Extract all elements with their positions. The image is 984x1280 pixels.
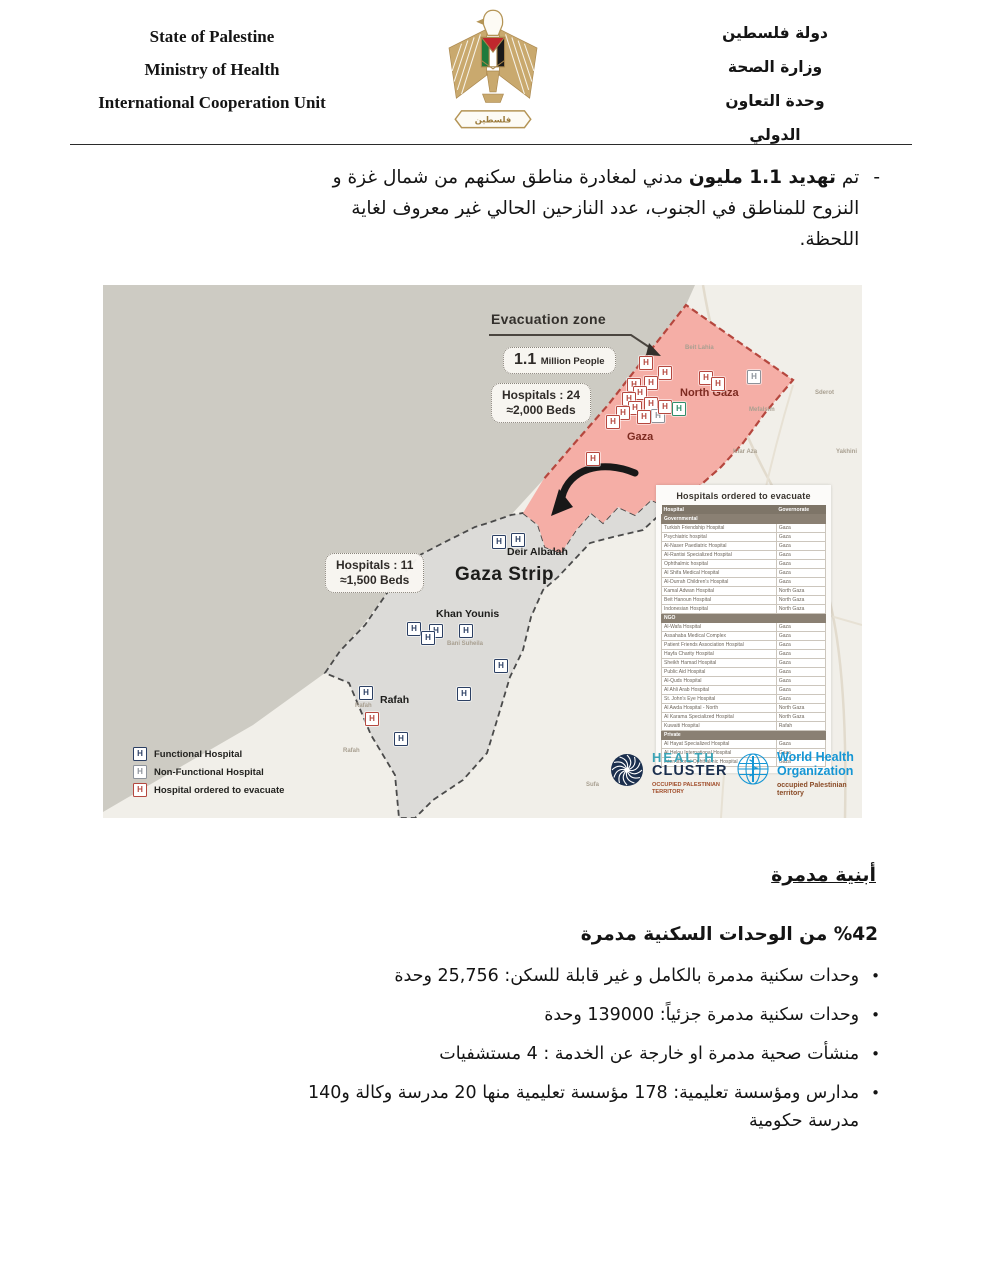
- who-line2: Organization: [777, 765, 854, 779]
- bg-place-label: Sufa: [586, 782, 599, 788]
- palestine-coat-of-arms: فلسطين: [438, 6, 548, 136]
- bullet-dot: •: [871, 1079, 880, 1135]
- bg-place-label: Kfar Aza: [733, 449, 757, 455]
- hospitals-table-body: GovernmentalTurkish Friendship HospitalG…: [662, 515, 826, 767]
- table-row: Hayfa Charity HospitalGaza: [662, 650, 826, 659]
- destroyed-bullets-list: •وحدات سكنية مدمرة بالكامل و غير قابلة ل…: [280, 962, 880, 1146]
- population-callout: 1.1 Million People: [503, 347, 616, 374]
- table-row: Al Shifa Medical HospitalGaza: [662, 569, 826, 578]
- hospital-evacuate-icon: H: [365, 712, 379, 726]
- table-section-row: NGO: [662, 614, 826, 623]
- table-row: Indonesian HospitalNorth Gaza: [662, 605, 826, 614]
- hospital-functional-icon: H: [359, 686, 373, 700]
- table-row: Ophthalmic hospitalGaza: [662, 560, 826, 569]
- header-arabic: دولة فلسطين وزارة الصحة وحدة التعاون الد…: [700, 16, 850, 152]
- hospital-green-icon: H: [672, 402, 686, 416]
- table-row: Sheikh Hamad HospitalGaza: [662, 659, 826, 668]
- table-row: Al Awda Hospital - NorthNorth Gaza: [662, 704, 826, 713]
- population-value: 1.1: [514, 351, 536, 368]
- hospital-functional-icon: H: [457, 687, 471, 701]
- table-row: St. John's Eye HospitalGaza: [662, 695, 826, 704]
- header-ar-line3: وحدة التعاون الدولي: [700, 84, 850, 152]
- bg-place-label: Mefalsim: [749, 407, 775, 413]
- bullet-dot: •: [871, 962, 880, 990]
- table-section-row: Private: [662, 731, 826, 740]
- header-divider: [70, 144, 912, 145]
- bullet-item: •منشأت صحية مدمرة او خارجة عن الخدمة : 4…: [280, 1040, 880, 1068]
- table-col-governorate: Governorate: [776, 505, 825, 515]
- table-row: Patient Friends Association HospitalGaza: [662, 641, 826, 650]
- header-ar-line2: وزارة الصحة: [700, 50, 850, 84]
- table-row: Kamal Adwan HospitalNorth Gaza: [662, 587, 826, 596]
- bullet-item: •مدارس ومؤسسة تعليمية: 178 مؤسسة تعليمية…: [280, 1079, 880, 1135]
- hospital-evacuate-icon: H: [711, 377, 725, 391]
- table-row: Al Ahli Arab HospitalGaza: [662, 686, 826, 695]
- hospital-evacuate-icon: H: [586, 452, 600, 466]
- table-row: Turkish Friendship HospitalGaza: [662, 524, 826, 533]
- legend-label: Functional Hospital: [154, 749, 242, 760]
- legend-item: HHospital ordered to evacuate: [133, 783, 284, 797]
- table-col-hospital: Hospital: [662, 505, 777, 515]
- hospital-evacuate-icon: H: [639, 356, 653, 370]
- header-en-line1: State of Palestine: [62, 20, 362, 53]
- south-hospitals-count: Hospitals : 11: [336, 558, 413, 573]
- bullet-text: منشأت صحية مدمرة او خارجة عن الخدمة : 4 …: [439, 1040, 859, 1068]
- hospital-nonfunctional-icon: H: [133, 765, 147, 779]
- hospital-evacuate-icon: H: [658, 366, 672, 380]
- bg-place-label: Rafah: [355, 703, 372, 709]
- hospital-evacuate-icon: H: [637, 410, 651, 424]
- bg-place-label: Sderot: [815, 390, 834, 396]
- legend-label: Hospital ordered to evacuate: [154, 785, 284, 796]
- label-north-gaza: North Gaza: [680, 387, 739, 399]
- table-row: Al-Quds HospitalGaza: [662, 677, 826, 686]
- gaza-hospitals-map: Evacuation zone 1.1 Million People Hospi…: [103, 285, 862, 818]
- health-cluster-logo: HEALTH CLUSTER OCCUPIED PALESTINIAN TERR…: [608, 751, 752, 796]
- bg-place-label: Rafah: [343, 748, 360, 754]
- intro-paragraph: - تم تهديد 1.1 مليون مدني لمغادرة مناطق …: [300, 162, 880, 255]
- who-emblem-icon: [735, 751, 771, 787]
- population-unit: Million People: [541, 356, 605, 367]
- health-cluster-swirl-icon: [608, 751, 646, 789]
- label-deir-albalah: Deir Albalah: [507, 546, 568, 558]
- hospital-functional-icon: H: [494, 659, 508, 673]
- south-hospitals-callout: Hospitals : 11 ≈1,500 Beds: [325, 553, 424, 593]
- who-line1: World Health: [777, 751, 854, 765]
- bullet-dot: •: [871, 1001, 880, 1029]
- bullet-text: وحدات سكنية مدمرة جزئياً: 139000 وحدة: [544, 1001, 859, 1029]
- header-en-line3: International Cooperation Unit: [62, 86, 362, 119]
- map-legend: HFunctional HospitalHNon-Functional Hosp…: [133, 747, 284, 801]
- table-row: Al-Naser Paediatric HospitalGaza: [662, 542, 826, 551]
- hospital-functional-icon: H: [394, 732, 408, 746]
- table-row: Al Hayat Specialized HospitalGaza: [662, 740, 826, 749]
- south-beds-count: ≈1,500 Beds: [336, 573, 413, 588]
- destroyed-buildings-heading: أبنية مدمرة: [771, 864, 876, 886]
- bullet-dot: •: [871, 1040, 880, 1068]
- bg-place-label: Bani Suheila: [447, 641, 483, 647]
- north-beds-count: ≈2,000 Beds: [502, 403, 580, 418]
- who-subtitle: occupied Palestinian territory: [777, 782, 854, 798]
- header-ar-line1: دولة فلسطين: [700, 16, 850, 50]
- north-hospitals-callout: Hospitals : 24 ≈2,000 Beds: [491, 383, 591, 423]
- hospital-functional-icon: H: [421, 631, 435, 645]
- emblem-banner-text: فلسطين: [475, 114, 512, 125]
- hospital-evacuate-icon: H: [658, 400, 672, 414]
- bg-place-label: Beit Lahia: [685, 345, 714, 351]
- label-gaza: Gaza: [627, 431, 653, 443]
- hospital-functional-icon: H: [459, 624, 473, 638]
- table-row: Al-Wafa HospitalGaza: [662, 623, 826, 632]
- destroyed-units-subheading: %42 من الوحدات السكنية مدمرة: [581, 924, 878, 945]
- north-hospitals-count: Hospitals : 24: [502, 388, 580, 403]
- table-row: Al-Rantisi Specialized HospitalGaza: [662, 551, 826, 560]
- hospital-functional-icon: H: [407, 622, 421, 636]
- table-row: Assahaba Medical ComplexGaza: [662, 632, 826, 641]
- who-logo: World Health Organization occupied Pales…: [735, 751, 854, 798]
- bullet-item: •وحدات سكنية مدمرة بالكامل و غير قابلة ل…: [280, 962, 880, 990]
- table-row: Kuwaiti HospitalRafah: [662, 722, 826, 731]
- label-gaza-strip: Gaza Strip: [455, 564, 554, 586]
- hospital-functional-icon: H: [133, 747, 147, 761]
- hospital-functional-icon: H: [511, 533, 525, 547]
- label-rafah: Rafah: [380, 694, 409, 706]
- bullet-text: وحدات سكنية مدمرة بالكامل و غير قابلة لل…: [394, 962, 859, 990]
- intro-text: تم تهديد 1.1 مليون مدني لمغادرة مناطق سك…: [300, 162, 859, 255]
- hospital-nonfunctional-icon: H: [747, 370, 761, 384]
- hospitals-evacuate-table: Hospitals ordered to evacuate Hospital G…: [656, 485, 831, 773]
- table-title: Hospitals ordered to evacuate: [661, 491, 826, 501]
- header-en-line2: Ministry of Health: [62, 53, 362, 86]
- document-page: State of Palestine Ministry of Health In…: [0, 0, 984, 1280]
- legend-item: HFunctional Hospital: [133, 747, 284, 761]
- bg-place-label: Yakhini: [836, 449, 857, 455]
- table-section-row: Governmental: [662, 515, 826, 524]
- bullet-item: •وحدات سكنية مدمرة جزئياً: 139000 وحدة: [280, 1001, 880, 1029]
- legend-item: HNon-Functional Hospital: [133, 765, 284, 779]
- legend-label: Non-Functional Hospital: [154, 767, 264, 778]
- list-dash: -: [873, 162, 880, 255]
- table-row: Al-Durrah Children's HospitalGaza: [662, 578, 826, 587]
- evacuation-zone-label: Evacuation zone: [491, 311, 606, 327]
- label-khan-younis: Khan Younis: [436, 608, 499, 620]
- hospital-functional-icon: H: [492, 535, 506, 549]
- header-english: State of Palestine Ministry of Health In…: [62, 20, 362, 119]
- table-row: Al Karama Specialized HospitalNorth Gaza: [662, 713, 826, 722]
- table-row: Beit Hanoun HospitalNorth Gaza: [662, 596, 826, 605]
- bullet-text: مدارس ومؤسسة تعليمية: 178 مؤسسة تعليمية …: [280, 1079, 859, 1135]
- hospital-evacuate-icon: H: [133, 783, 147, 797]
- hospital-evacuate-icon: H: [606, 415, 620, 429]
- table-row: Public Aid HospitalGaza: [662, 668, 826, 677]
- table-row: Psychiatric hospitalGaza: [662, 533, 826, 542]
